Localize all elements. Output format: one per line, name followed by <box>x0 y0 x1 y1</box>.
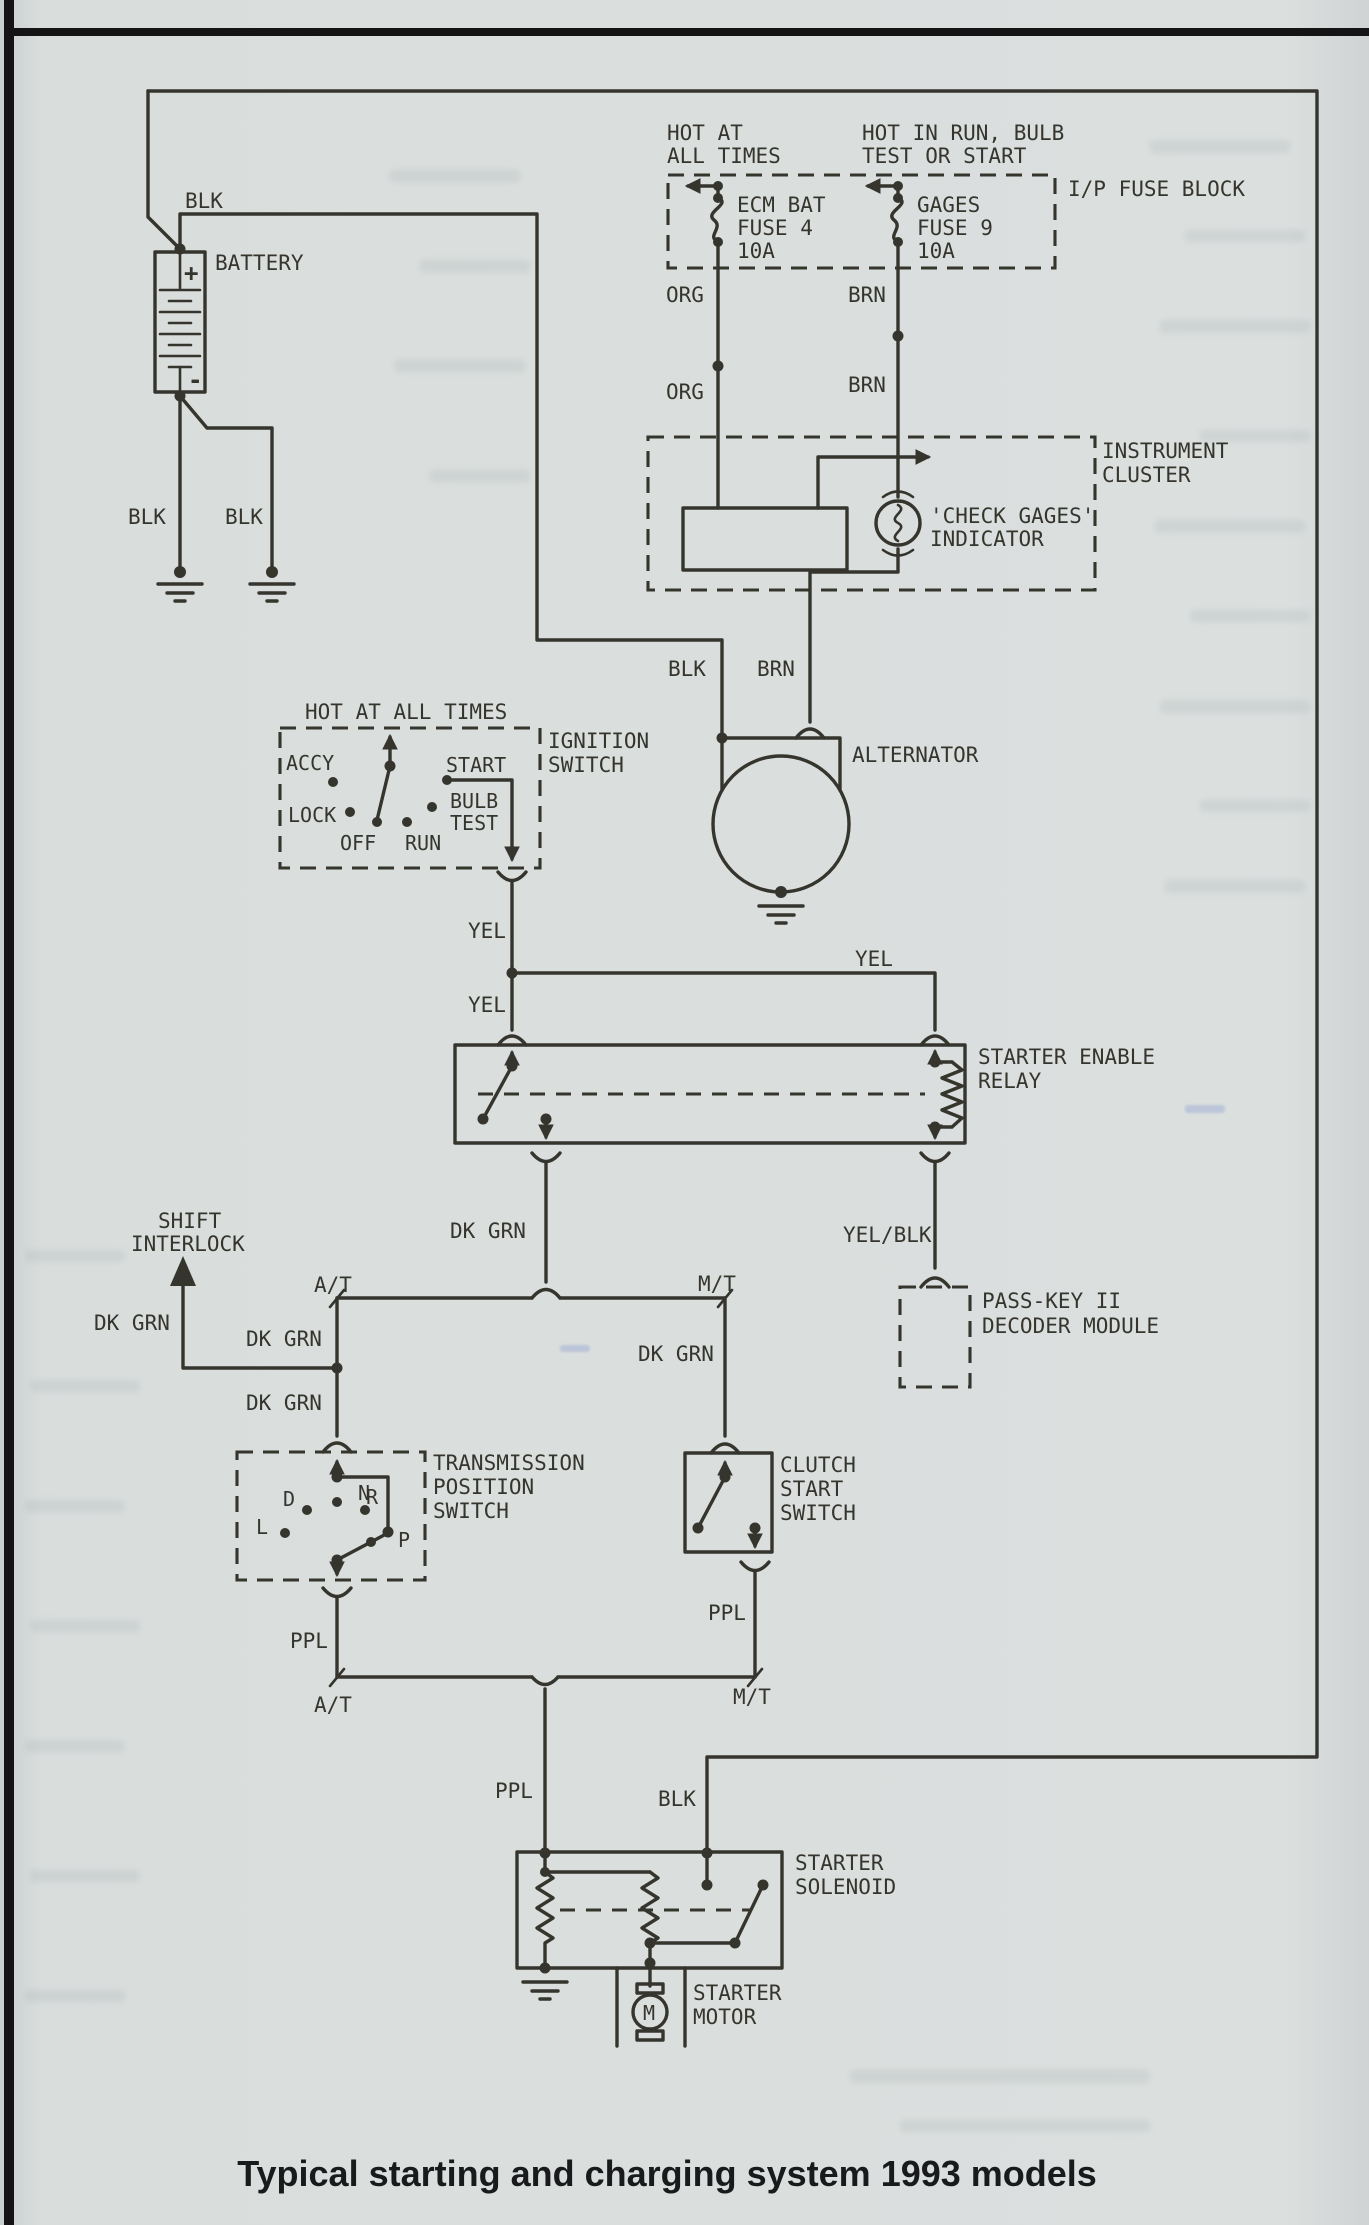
wire-label-dkgrn-shift: DK GRN <box>94 1311 170 1335</box>
trans-pos-l: L <box>256 1515 268 1539</box>
connector-arc <box>498 872 526 881</box>
wire-yel-cross <box>512 973 935 1030</box>
check-gages-bulb-icon <box>876 492 920 556</box>
wire-label-org-2: ORG <box>666 380 704 404</box>
wiring-diagram: + - BATTERY BLK BLK BLK I/P FUSE BLOCK H… <box>0 0 1369 2225</box>
wire-label-yel-1: YEL <box>468 919 506 943</box>
wire-label-brn-2: BRN <box>848 373 886 397</box>
wire-label-ppl-clutch: PPL <box>708 1601 746 1625</box>
ignition-pos-start: START <box>446 753 506 777</box>
relay-title-1: STARTER ENABLE <box>978 1045 1155 1069</box>
starter-motor-group: M STARTER MOTOR <box>633 1963 782 2040</box>
wire-label-yel-2: YEL <box>468 993 506 1017</box>
starter-enable-relay-group: STARTER ENABLE RELAY <box>455 1036 1155 1162</box>
page-spine-bar <box>4 0 14 2225</box>
shift-interlock-label-2: INTERLOCK <box>131 1232 245 1256</box>
clutch-start-switch-group: CLUTCH START SWITCH <box>685 1444 856 1571</box>
battery-group: + - BATTERY <box>155 244 304 402</box>
ignition-pos-lock: LOCK <box>288 803 336 827</box>
cluster-title-1: INSTRUMENT <box>1102 439 1229 463</box>
merge-label-at: A/T <box>314 1693 352 1717</box>
wire-label-blk-battery: BLK <box>185 189 223 213</box>
wire-label-dkgrn-relay: DK GRN <box>450 1219 526 1243</box>
trans-title-1: TRANSMISSION <box>433 1451 585 1475</box>
fuse-block-group: I/P FUSE BLOCK HOT AT ALL TIMES HOT IN R… <box>667 121 1245 268</box>
alternator-label: ALTERNATOR <box>852 743 979 767</box>
battery-minus-sign: - <box>188 366 202 394</box>
trans-pos-d: D <box>283 1487 295 1511</box>
wire-label-org-1: ORG <box>666 283 704 307</box>
passkey-title-1: PASS-KEY II <box>982 1289 1121 1313</box>
wire-bulb-to-brn-out <box>810 549 898 722</box>
shift-interlock-arrow <box>170 1256 196 1286</box>
wire-label-dkgrn-at1: DK GRN <box>246 1327 322 1351</box>
trans-title-2: POSITION <box>433 1475 534 1499</box>
wire-label-yelblk: YEL/BLK <box>843 1223 932 1247</box>
merge-label-mt: M/T <box>733 1685 771 1709</box>
hot-in-run-header-2: TEST OR START <box>862 144 1027 168</box>
fuse-ecm-bat: ECM BAT FUSE 4 10A <box>688 181 826 268</box>
scanned-manual-page: + - BATTERY BLK BLK BLK I/P FUSE BLOCK H… <box>0 0 1369 2225</box>
clutch-title-2: START <box>780 1477 844 1501</box>
fuse9-name-2: FUSE 9 <box>917 216 993 240</box>
relay-title-2: RELAY <box>978 1069 1042 1093</box>
at-mt-merge-group: A/T M/T <box>314 1669 771 1717</box>
solenoid-title-2: SOLENOID <box>795 1875 896 1899</box>
hot-at-all-times-header-1: HOT AT <box>667 121 743 145</box>
motor-title-1: STARTER <box>693 1981 782 2005</box>
split-label-mt: M/T <box>698 1272 736 1296</box>
ignition-pos-bulb-1: BULB <box>450 789 498 813</box>
wire-label-ppl-merged: PPL <box>495 1779 533 1803</box>
solenoid-title-1: STARTER <box>795 1851 884 1875</box>
trans-pos-r: R <box>366 1485 379 1509</box>
shift-interlock-label-1: SHIFT <box>158 1209 222 1233</box>
gauges-module <box>683 508 847 570</box>
fuse4-name-1: ECM BAT <box>737 193 826 217</box>
wire-label-dkgrn-at2: DK GRN <box>246 1391 322 1415</box>
page-top-rule <box>4 28 1369 36</box>
cluster-output-arrow <box>818 457 928 508</box>
fuse4-rating: 10A <box>737 239 775 263</box>
wire-label-blk-solenoid: BLK <box>658 1787 696 1811</box>
check-gages-label-2: INDICATOR <box>930 527 1044 551</box>
hot-in-run-header-1: HOT IN RUN, BULB <box>862 121 1064 145</box>
wire-label-blk-alt: BLK <box>668 657 706 681</box>
ignition-pos-off: OFF <box>340 831 376 855</box>
cluster-title-2: CLUSTER <box>1102 463 1191 487</box>
transmission-position-switch-group: TRANSMISSION POSITION SWITCH N D L R P <box>237 1443 585 1597</box>
ignition-pos-bulb-2: TEST <box>450 811 498 835</box>
alternator-group: ALTERNATOR <box>713 729 979 923</box>
ignition-switch-group: HOT AT ALL TIMES IGNITION SWITCH ACCY LO… <box>280 700 649 881</box>
ground-icon <box>158 566 202 601</box>
ignition-pos-accy: ACCY <box>286 751 334 775</box>
ignition-pos-run: RUN <box>405 831 441 855</box>
starter-motor-symbol: M <box>643 2001 655 2025</box>
at-mt-split-group: A/T M/T <box>314 1272 736 1307</box>
wire-battery-to-top-loop <box>148 91 180 249</box>
clutch-title-3: SWITCH <box>780 1501 856 1525</box>
trans-pos-p: P <box>398 1528 410 1552</box>
figure-caption: Typical starting and charging system 199… <box>237 2153 1097 2194</box>
fuse-gages: GAGES FUSE 9 10A <box>868 181 993 268</box>
ignition-lever <box>377 766 390 820</box>
wire-label-blk-gnd1: BLK <box>128 505 166 529</box>
fuse9-rating: 10A <box>917 239 955 263</box>
fuse4-name-2: FUSE 4 <box>737 216 813 240</box>
trans-title-3: SWITCH <box>433 1499 509 1523</box>
battery-plus-sign: + <box>184 259 198 287</box>
passkey-module-group: PASS-KEY II DECODER MODULE <box>900 1278 1159 1387</box>
wire-battery-ground-right <box>180 396 272 566</box>
battery-label: BATTERY <box>215 251 304 275</box>
ground-icon <box>250 566 294 601</box>
hot-at-all-times-header-2: ALL TIMES <box>667 144 781 168</box>
wire-label-dkgrn-mt: DK GRN <box>638 1342 714 1366</box>
wire-label-brn-1: BRN <box>848 283 886 307</box>
clutch-title-1: CLUTCH <box>780 1453 856 1477</box>
fuse9-name-1: GAGES <box>917 193 980 217</box>
wire-label-ppl-trans: PPL <box>290 1629 328 1653</box>
wire-battery-to-alternator-blk <box>180 214 722 738</box>
wire-label-blk-gnd2: BLK <box>225 505 263 529</box>
split-label-at: A/T <box>314 1273 352 1297</box>
check-gages-label-1: 'CHECK GAGES' <box>930 504 1094 528</box>
wire-label-brn-alt: BRN <box>757 657 795 681</box>
passkey-title-2: DECODER MODULE <box>982 1314 1159 1338</box>
motor-title-2: MOTOR <box>693 2005 757 2029</box>
ignition-hot-header: HOT AT ALL TIMES <box>305 700 507 724</box>
ignition-title-2: SWITCH <box>548 753 624 777</box>
instrument-cluster-group: INSTRUMENT CLUSTER 'CHECK GAGES' INDICAT… <box>648 437 1229 722</box>
fuse-block-title: I/P FUSE BLOCK <box>1068 177 1245 201</box>
wire-label-yel-3: YEL <box>855 947 893 971</box>
ignition-title-1: IGNITION <box>548 729 649 753</box>
